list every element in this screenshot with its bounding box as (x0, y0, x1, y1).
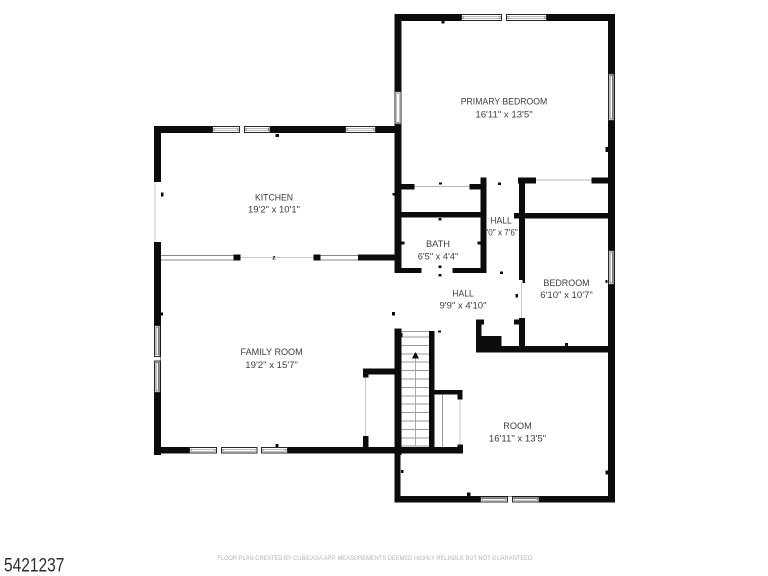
svg-text:16'11" x 13'5": 16'11" x 13'5" (475, 110, 532, 121)
svg-text:FAMILY ROOM: FAMILY ROOM (241, 347, 303, 357)
svg-text:19'2" x 15'7": 19'2" x 15'7" (245, 360, 298, 371)
svg-text:16'11" x 13'5": 16'11" x 13'5" (489, 434, 546, 445)
svg-text:6'5" x 4'4": 6'5" x 4'4" (418, 250, 459, 261)
svg-text:6'10" x 10'7": 6'10" x 10'7" (540, 290, 593, 301)
svg-text:PRIMARY BEDROOM: PRIMARY BEDROOM (461, 96, 547, 106)
svg-text:3'0" x 7'6": 3'0" x 7'6" (482, 227, 518, 238)
svg-text:5421237: 5421237 (4, 554, 64, 576)
svg-text:KITCHEN: KITCHEN (255, 192, 293, 203)
svg-text:19'2" x 10'1": 19'2" x 10'1" (248, 204, 300, 215)
svg-text:HALL: HALL (452, 288, 474, 299)
svg-text:BEDROOM: BEDROOM (543, 278, 589, 288)
svg-text:ROOM: ROOM (503, 420, 532, 431)
svg-text:BATH: BATH (426, 238, 450, 249)
svg-text:9'9" x 4'10": 9'9" x 4'10" (440, 300, 487, 311)
svg-text:FLOOR PLAN CREATED BY CUBICASA: FLOOR PLAN CREATED BY CUBICASA APP. MEAS… (217, 556, 534, 562)
svg-text:HALL: HALL (490, 215, 512, 226)
